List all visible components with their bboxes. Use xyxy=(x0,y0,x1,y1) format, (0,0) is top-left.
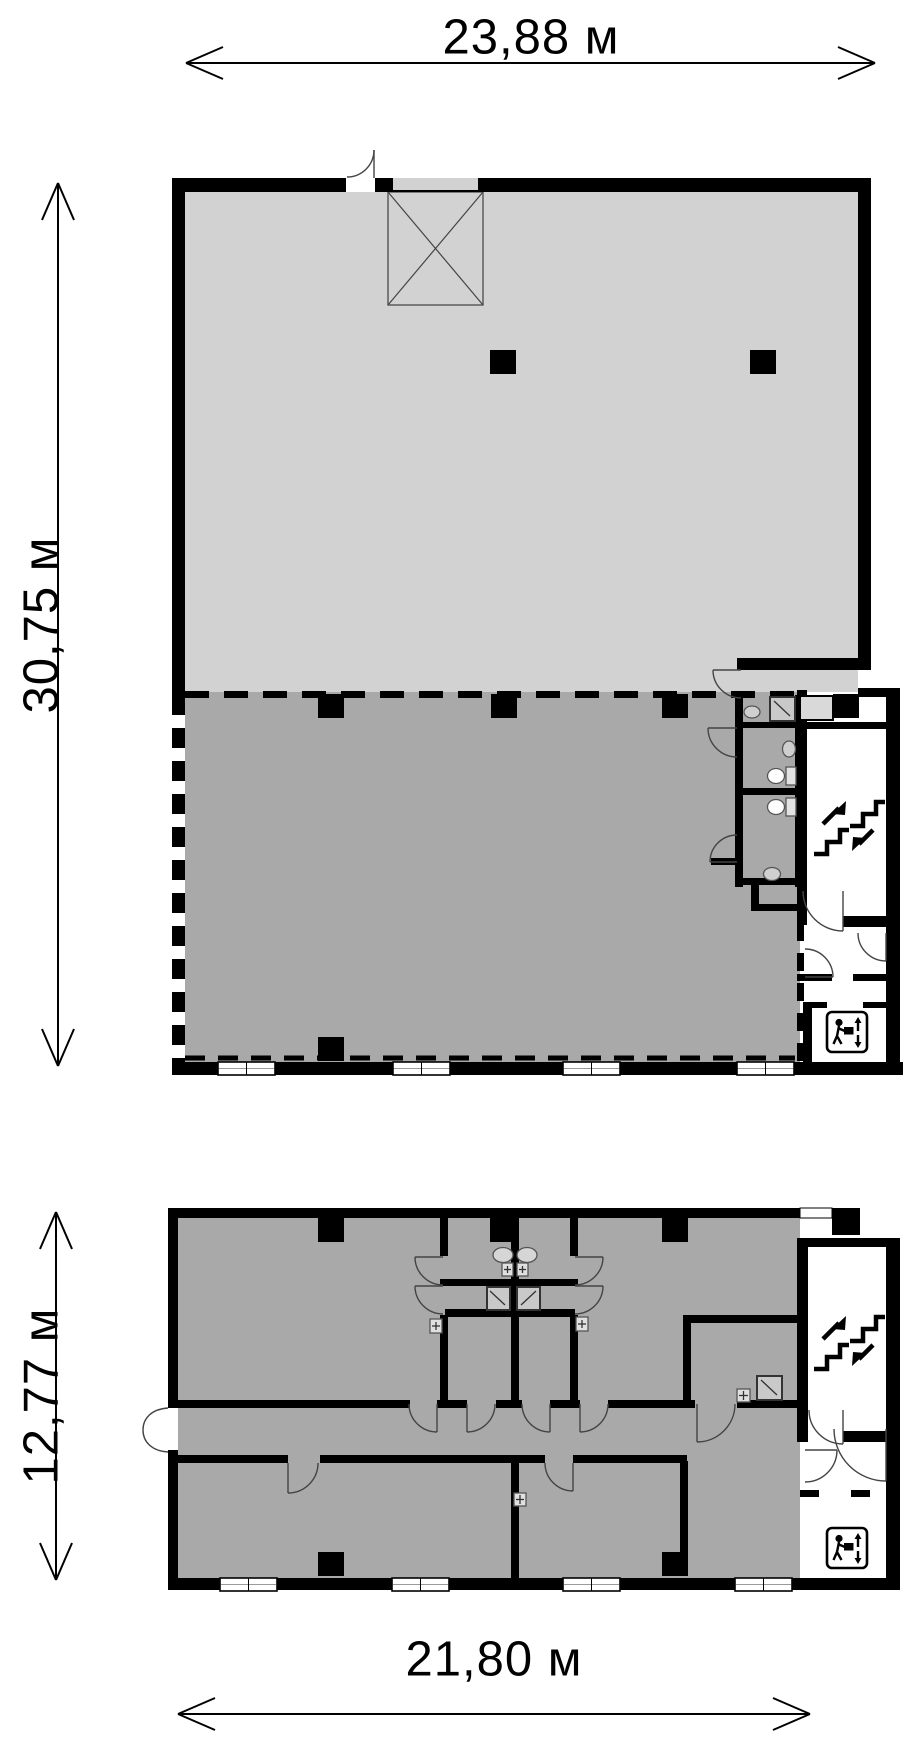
sink-icon xyxy=(517,1248,537,1263)
valve-box-icon xyxy=(737,1389,750,1402)
freight-elevator-icon xyxy=(827,1012,867,1052)
lower-floor-plan xyxy=(143,1208,900,1591)
floor-plan-sheet: 23,88 м 30,75 м 12,77 м 21,80 м xyxy=(0,0,912,1753)
shower-icon xyxy=(757,1376,782,1400)
upper-zone-dark xyxy=(185,692,800,1062)
sink-icon xyxy=(493,1248,513,1263)
upper-zone-light xyxy=(185,190,858,692)
sink-icon xyxy=(764,868,781,881)
sink-icon xyxy=(744,706,760,718)
dimension-bottom-arrow xyxy=(178,1698,810,1730)
round-sink-icon xyxy=(783,741,796,757)
lower-zone-dark xyxy=(178,1218,800,1578)
valve-box-icon xyxy=(430,1319,442,1333)
dimension-left-lower-arrow xyxy=(40,1212,72,1580)
stairs-up-down-icon xyxy=(814,801,885,854)
freight-elevator-icon xyxy=(827,1528,867,1568)
shower-icon xyxy=(517,1287,540,1310)
urinal-icon xyxy=(502,1263,513,1276)
shower-icon xyxy=(487,1287,510,1310)
shaft-x-box xyxy=(388,192,483,305)
service-lift-cabin xyxy=(800,696,833,720)
upper-floor-areas xyxy=(185,190,858,1062)
valve-box-icon xyxy=(576,1317,588,1331)
floor-plan-drawing xyxy=(0,0,912,1753)
urinal-icon xyxy=(517,1263,528,1276)
stairs-up-down-icon xyxy=(814,1316,885,1369)
shower-icon xyxy=(770,697,795,721)
dimension-top-arrow xyxy=(186,47,875,79)
valve-box-icon xyxy=(514,1493,526,1506)
toilet-icon xyxy=(768,798,797,816)
toilet-icon xyxy=(768,767,797,785)
dimension-left-upper-arrow xyxy=(42,183,74,1066)
upper-floor-plan xyxy=(172,150,903,1075)
